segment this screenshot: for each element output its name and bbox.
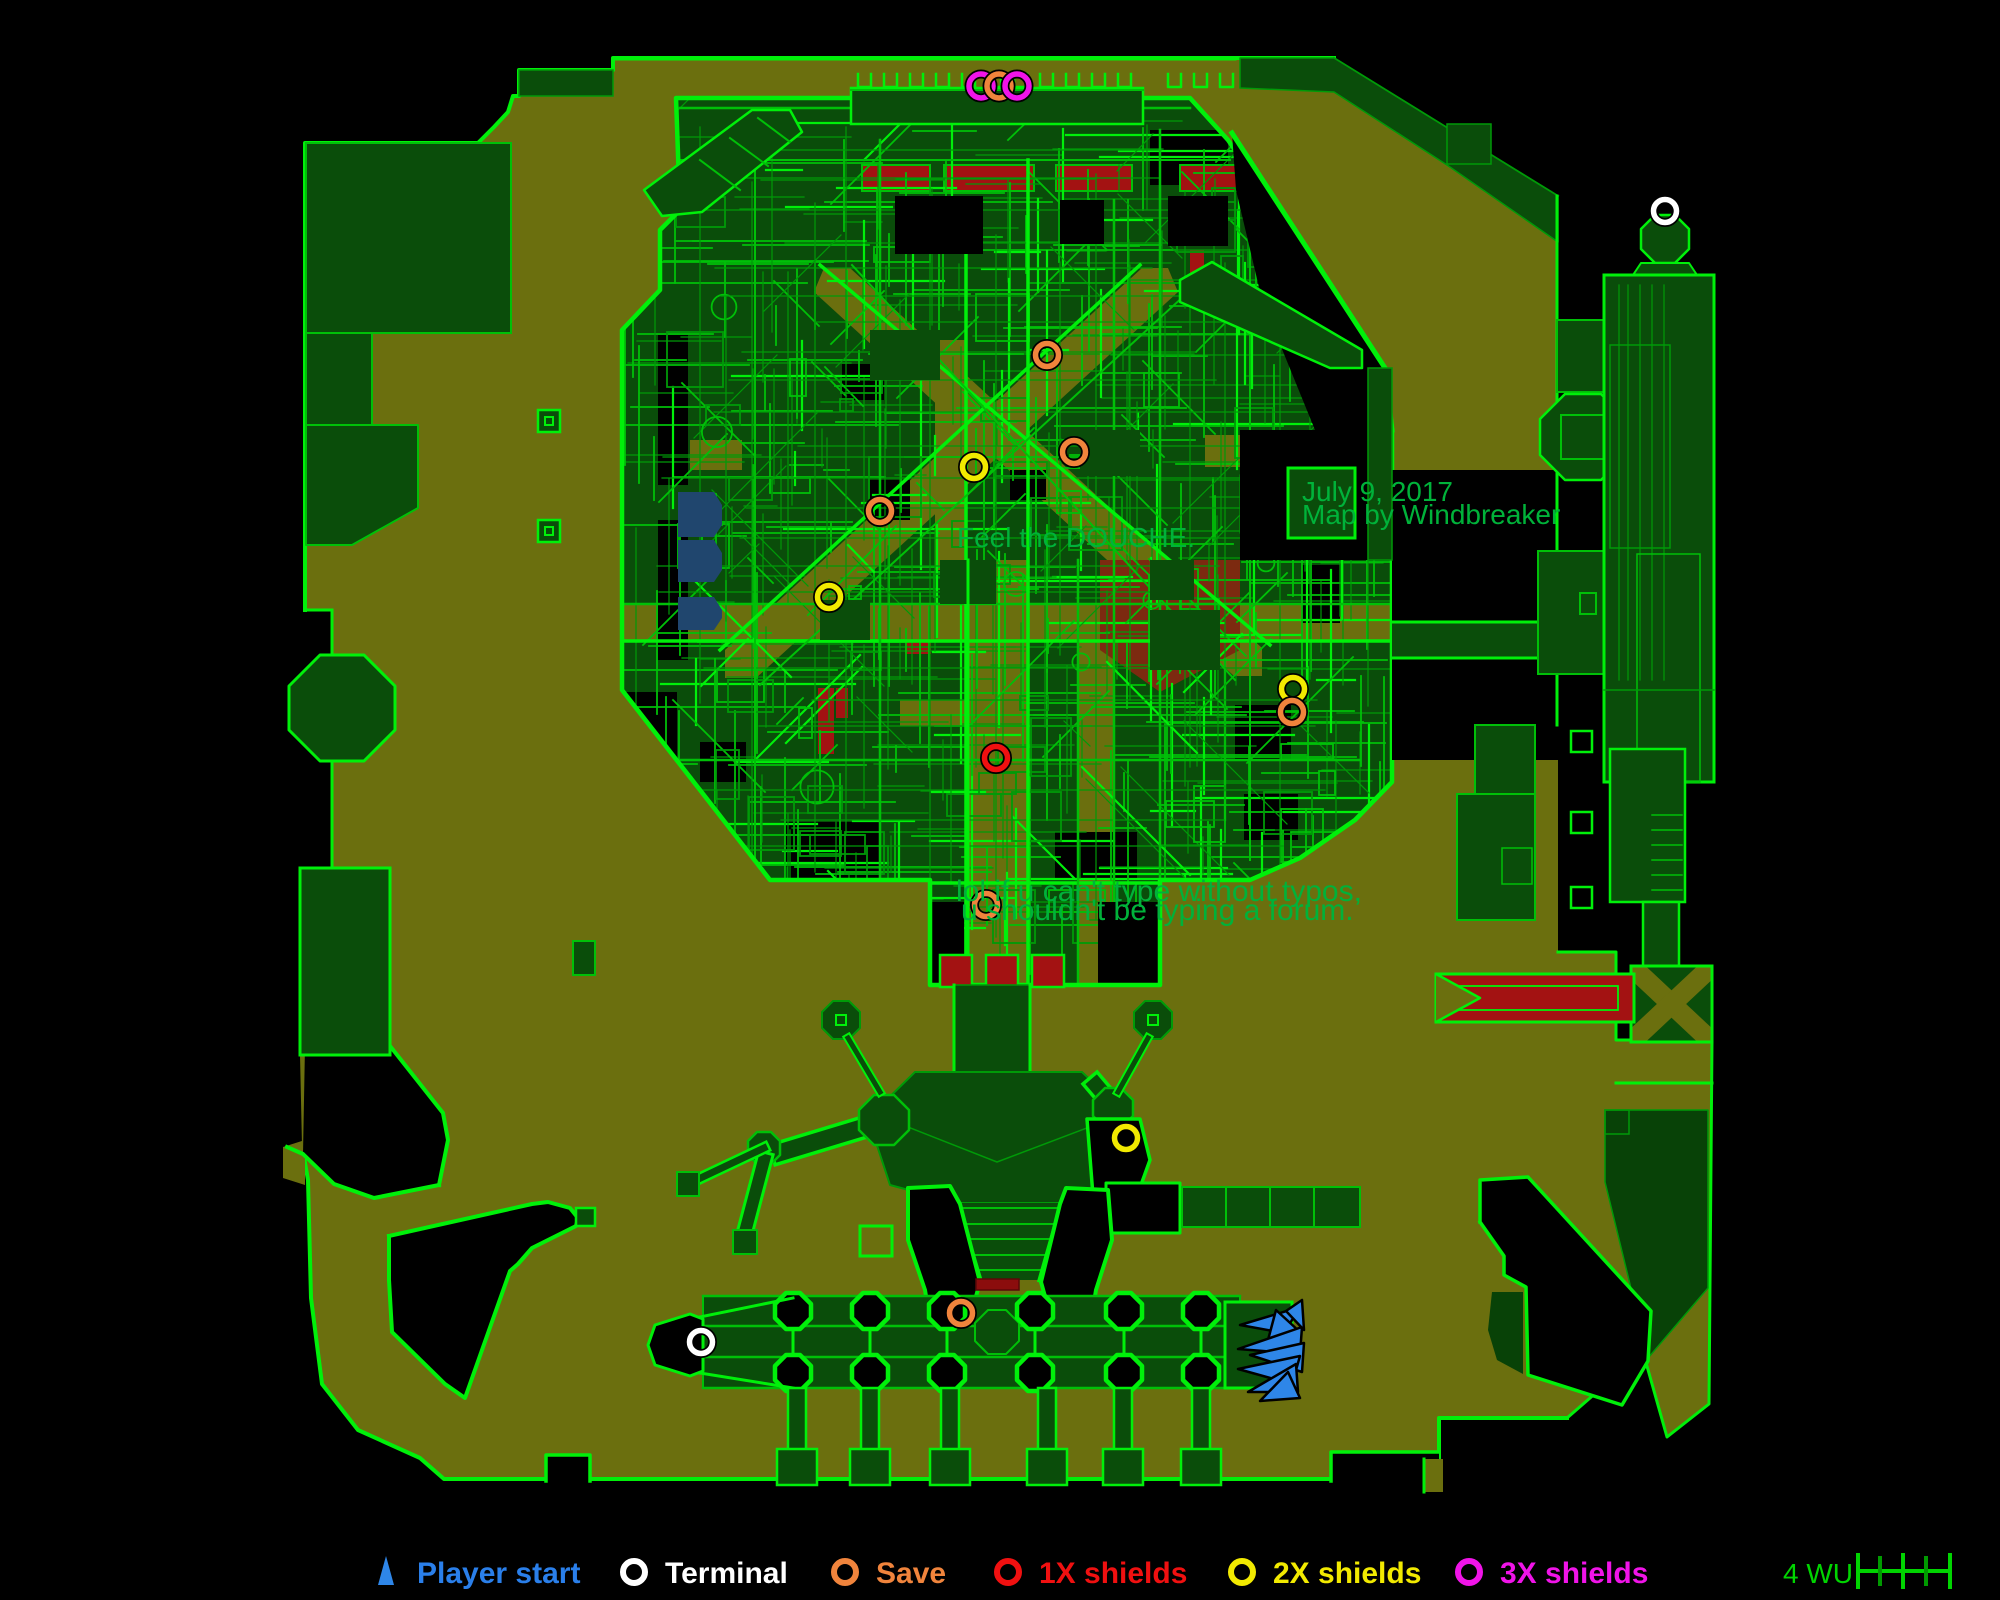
svg-text:u shouldn't be typing a forum.: u shouldn't be typing a forum. [961, 894, 1354, 927]
svg-text:3X shields: 3X shields [1500, 1557, 1648, 1590]
svg-text:Player start: Player start [417, 1557, 580, 1590]
svg-text:Terminal: Terminal [665, 1557, 788, 1590]
svg-text:Feel the DOUCHE.: Feel the DOUCHE. [957, 522, 1195, 553]
svg-text:Save: Save [876, 1557, 946, 1590]
svg-text:1X shields: 1X shields [1039, 1557, 1187, 1590]
svg-text:2X shields: 2X shields [1273, 1557, 1421, 1590]
svg-text:4 WU: 4 WU [1783, 1558, 1853, 1589]
svg-text:Map by Windbreaker: Map by Windbreaker [1302, 499, 1560, 530]
